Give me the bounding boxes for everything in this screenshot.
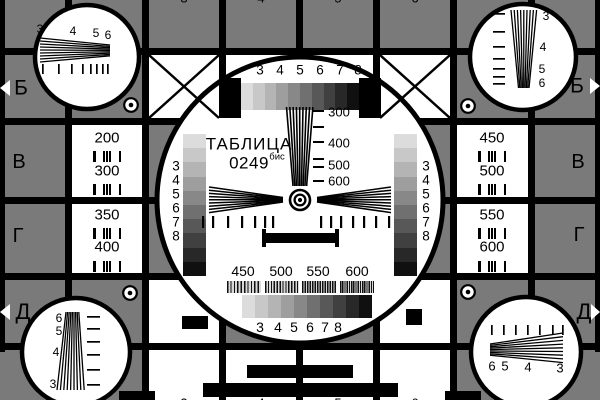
corner-br-tick	[562, 325, 564, 335]
label-cells-left-0-values-0: 200	[94, 131, 119, 146]
label-corner_wedges-top_right-3: 6	[539, 77, 546, 89]
center-phase-tick	[241, 216, 243, 228]
wedge-scale-dash	[313, 141, 324, 143]
label-row_labels-left-2: Г	[13, 226, 24, 246]
convergence-target-dot	[129, 103, 134, 108]
label-corner_wedges-bottom_left-2: 4	[53, 346, 60, 358]
label-row_labels-left-1: В	[12, 152, 25, 172]
label-card-code: 0249	[229, 155, 269, 172]
corner-tr-dash	[493, 68, 505, 70]
label-center-burst_marks-2: 550	[306, 264, 329, 278]
label-center-burst_marks-0: 450	[231, 264, 254, 278]
label-column_digits-top-3: 6	[411, 0, 418, 5]
label-corner_wedges-bottom_right-1: 5	[501, 360, 508, 373]
label-corner_wedges-top_right-1: 4	[540, 41, 547, 53]
label-center-bottom_scale-3: 6	[306, 320, 314, 334]
center-phase-tick	[320, 216, 322, 228]
corner-tl-tick	[96, 64, 98, 74]
convergence-target-dot	[466, 290, 471, 295]
label-center-wedge_marks-1: 400	[328, 137, 350, 150]
label-row_labels-right-0: Б	[570, 76, 584, 97]
label-center-burst_marks-1: 500	[269, 264, 292, 278]
corner-tl-wedge-line	[40, 52, 110, 53]
label-card-code_suffix: бис	[269, 152, 285, 162]
wedge-scale-dash	[313, 166, 324, 168]
label-corner_wedges-top_left-1: 4	[70, 25, 77, 37]
label-center-right_scale-5: 8	[422, 229, 430, 243]
label-row_labels-left-3: Д	[16, 301, 31, 323]
center-phase-tick	[340, 216, 342, 228]
corner-br-tick	[539, 325, 541, 335]
label-center-top_scale-0: 3	[256, 63, 264, 77]
label-column_digits-top-2: 5	[334, 0, 341, 5]
corner-br-tick	[503, 325, 505, 335]
corner-tr-dash	[493, 76, 505, 78]
label-cells-right-0-values-0: 450	[479, 131, 504, 146]
label-corner_wedges-top_right-0: 3	[543, 10, 550, 22]
label-column_digits-top-0: 3	[180, 0, 187, 5]
center-phase-tick	[264, 216, 266, 228]
center-vertical-wedge-line	[302, 107, 304, 186]
label-corner_wedges-bottom_left-1: 5	[56, 325, 63, 337]
corner-br-tick	[552, 325, 554, 335]
label-center-left_scale-4: 7	[172, 215, 180, 229]
corner-tl-tick	[58, 64, 60, 74]
label-column_digits-bottom-3: 6	[411, 397, 418, 400]
corner-bl-dash	[87, 328, 100, 330]
label-center-left_scale-3: 6	[172, 201, 180, 215]
label-center-left_scale-2: 5	[172, 187, 180, 201]
label-corner_wedges-bottom_right-2: 4	[524, 361, 531, 374]
label-center-right_scale-1: 4	[422, 173, 430, 187]
label-cells-left-1-values-0: 350	[94, 208, 119, 223]
wedge-scale-dash	[313, 180, 324, 182]
center-phase-tick	[254, 216, 256, 228]
label-center-bottom_scale-1: 4	[274, 320, 282, 334]
convergence-target-dot	[466, 104, 471, 109]
tv-test-card: ТАБЛИЦА0249бис34567834567834567834567830…	[0, 0, 600, 400]
label-center-wedge_marks-0: 300	[328, 106, 350, 119]
wedge-scale-dash	[313, 158, 324, 160]
label-column_digits-bottom-0: 3	[180, 397, 187, 400]
label-cells-right-1-values-0: 550	[479, 208, 504, 223]
corner-br-tick	[491, 325, 493, 335]
wedge-scale-dash	[313, 126, 324, 128]
label-cells-left-0-values-1: 300	[94, 164, 119, 179]
label-corner_wedges-bottom_left-0: 6	[56, 312, 63, 324]
wedge-overlay-layer	[0, 0, 600, 400]
corner-bl-dash	[87, 341, 100, 343]
label-corner_wedges-top_left-0: 3	[37, 23, 44, 35]
label-column_digits-bottom-1: 4	[257, 397, 264, 400]
label-corner_wedges-bottom_right-3: 3	[556, 362, 563, 375]
edge-arrow-left-b	[0, 80, 10, 96]
label-cells-right-0-values-1: 500	[479, 164, 504, 179]
corner-tr-dash	[493, 46, 505, 48]
label-corner_wedges-bottom_right-0: 6	[488, 360, 495, 373]
corner-tl-tick	[107, 64, 109, 74]
corner-tl-tick	[82, 64, 84, 74]
label-center-bottom_scale-5: 8	[334, 320, 342, 334]
label-cells-right-1-values-1: 600	[479, 240, 504, 255]
label-center-left_scale-1: 4	[172, 173, 180, 187]
label-center-top_scale-4: 7	[336, 63, 344, 77]
label-center-bottom_scale-4: 7	[321, 320, 329, 334]
corner-tl-tick	[102, 64, 104, 74]
label-row_labels-right-3: Д	[577, 301, 592, 323]
center-bullseye-dot	[298, 198, 302, 202]
corner-br-wedge-line	[490, 351, 563, 352]
corner-tl-tick	[90, 64, 92, 74]
corner-tr-dash	[493, 31, 505, 33]
label-row_labels-right-2: Г	[574, 225, 585, 245]
center-phase-tick	[227, 216, 229, 228]
corner-tl-tick	[42, 64, 44, 74]
corner-tl-tick	[71, 64, 73, 74]
center-phase-tick	[352, 216, 354, 228]
label-corner_wedges-bottom_left-3: 3	[50, 378, 57, 390]
label-corner_wedges-top_left-2: 5	[93, 27, 100, 39]
center-phase-tick	[388, 216, 390, 228]
label-row_labels-left-0: Б	[14, 78, 28, 99]
label-center-top_scale-5: 8	[354, 63, 362, 77]
convergence-target-dot	[128, 291, 133, 296]
corner-tr-dash	[493, 58, 505, 60]
label-center-wedge_marks-2: 500	[328, 159, 350, 172]
corner-bl-dash	[87, 354, 100, 356]
wedge-scale-dash	[313, 110, 324, 112]
label-cells-left-1-values-1: 400	[94, 240, 119, 255]
corner-tr-dash	[493, 83, 505, 85]
label-corner_wedges-top_right-2: 5	[539, 63, 546, 75]
label-center-wedge_marks-3: 600	[328, 175, 350, 188]
corner-bl-dash	[87, 369, 100, 371]
label-center-left_scale-5: 8	[172, 229, 180, 243]
center-phase-tick	[212, 216, 214, 228]
center-phase-tick	[363, 216, 365, 228]
label-corner_wedges-top_left-3: 6	[105, 29, 112, 41]
label-card-title: ТАБЛИЦА	[206, 136, 293, 153]
label-center-left_scale-0: 3	[172, 159, 180, 173]
center-phase-tick	[272, 216, 274, 228]
label-center-right_scale-4: 7	[422, 215, 430, 229]
edge-arrow-right-b	[590, 78, 600, 94]
corner-bl-dash	[87, 316, 100, 318]
corner-tr-dash	[493, 13, 505, 15]
corner-br-tick	[515, 325, 517, 335]
label-center-right_scale-2: 5	[422, 187, 430, 201]
edge-arrow-left-d	[0, 304, 10, 320]
edge-arrow-right-d	[591, 304, 600, 320]
label-center-right_scale-3: 6	[422, 201, 430, 215]
label-center-top_scale-1: 4	[276, 63, 284, 77]
label-row_labels-right-1: В	[571, 152, 584, 172]
label-center-right_scale-0: 3	[422, 159, 430, 173]
corner-bl-dash	[87, 384, 100, 386]
label-center-burst_marks-3: 600	[345, 264, 368, 278]
label-center-top_scale-3: 6	[316, 63, 324, 77]
center-phase-tick	[202, 216, 204, 228]
label-center-top_scale-2: 5	[296, 63, 304, 77]
label-column_digits-bottom-2: 5	[334, 397, 341, 400]
corner-br-tick	[527, 325, 529, 335]
center-phase-tick	[330, 216, 332, 228]
label-center-bottom_scale-2: 5	[290, 320, 298, 334]
label-column_digits-top-1: 4	[257, 0, 264, 5]
center-phase-tick	[375, 216, 377, 228]
label-center-bottom_scale-0: 3	[256, 320, 264, 334]
